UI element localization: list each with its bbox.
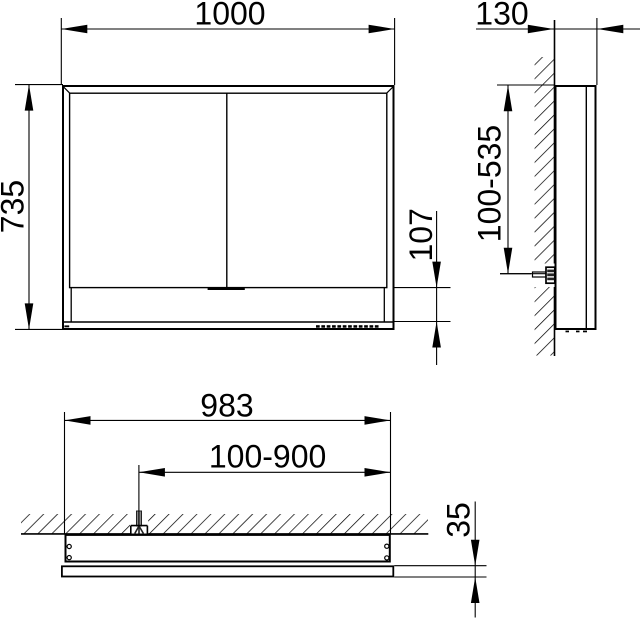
svg-text:735: 735 xyxy=(0,180,31,233)
svg-text:130: 130 xyxy=(475,0,528,31)
svg-text:35: 35 xyxy=(441,502,477,538)
svg-text:1000: 1000 xyxy=(194,0,265,31)
svg-text:107: 107 xyxy=(403,208,439,261)
svg-text:983: 983 xyxy=(200,388,253,424)
svg-text:100-535: 100-535 xyxy=(472,125,508,242)
svg-text:100-900: 100-900 xyxy=(209,439,326,475)
